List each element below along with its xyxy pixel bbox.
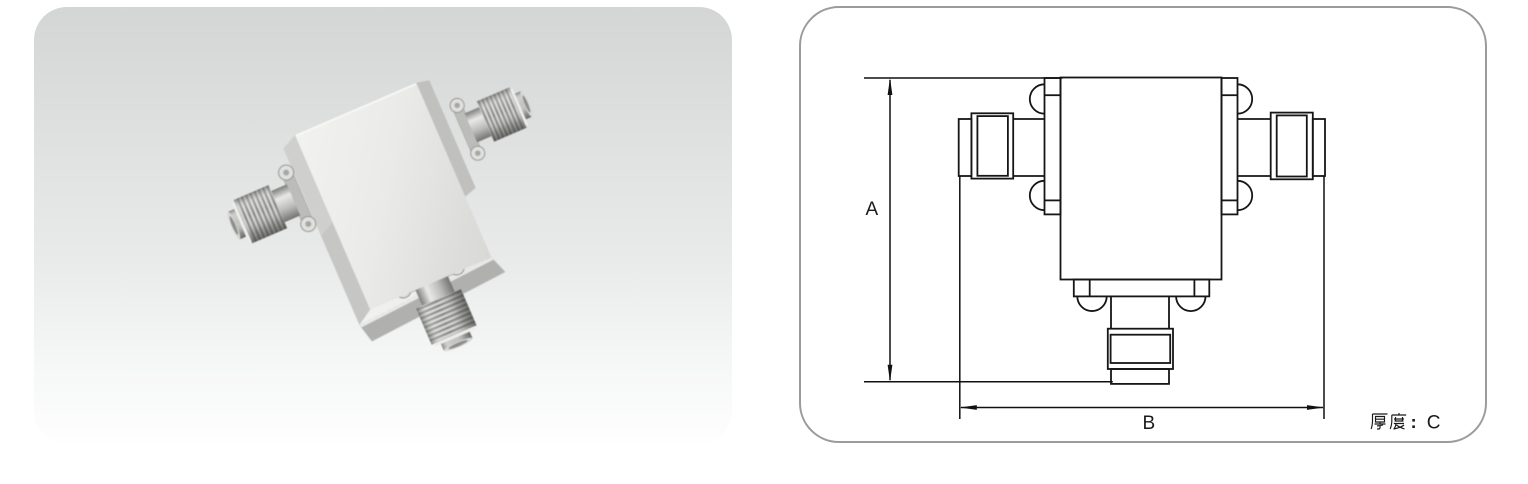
svg-text:A: A <box>866 199 879 220</box>
svg-text:C: C <box>1427 413 1441 434</box>
svg-text:B: B <box>1143 413 1156 434</box>
